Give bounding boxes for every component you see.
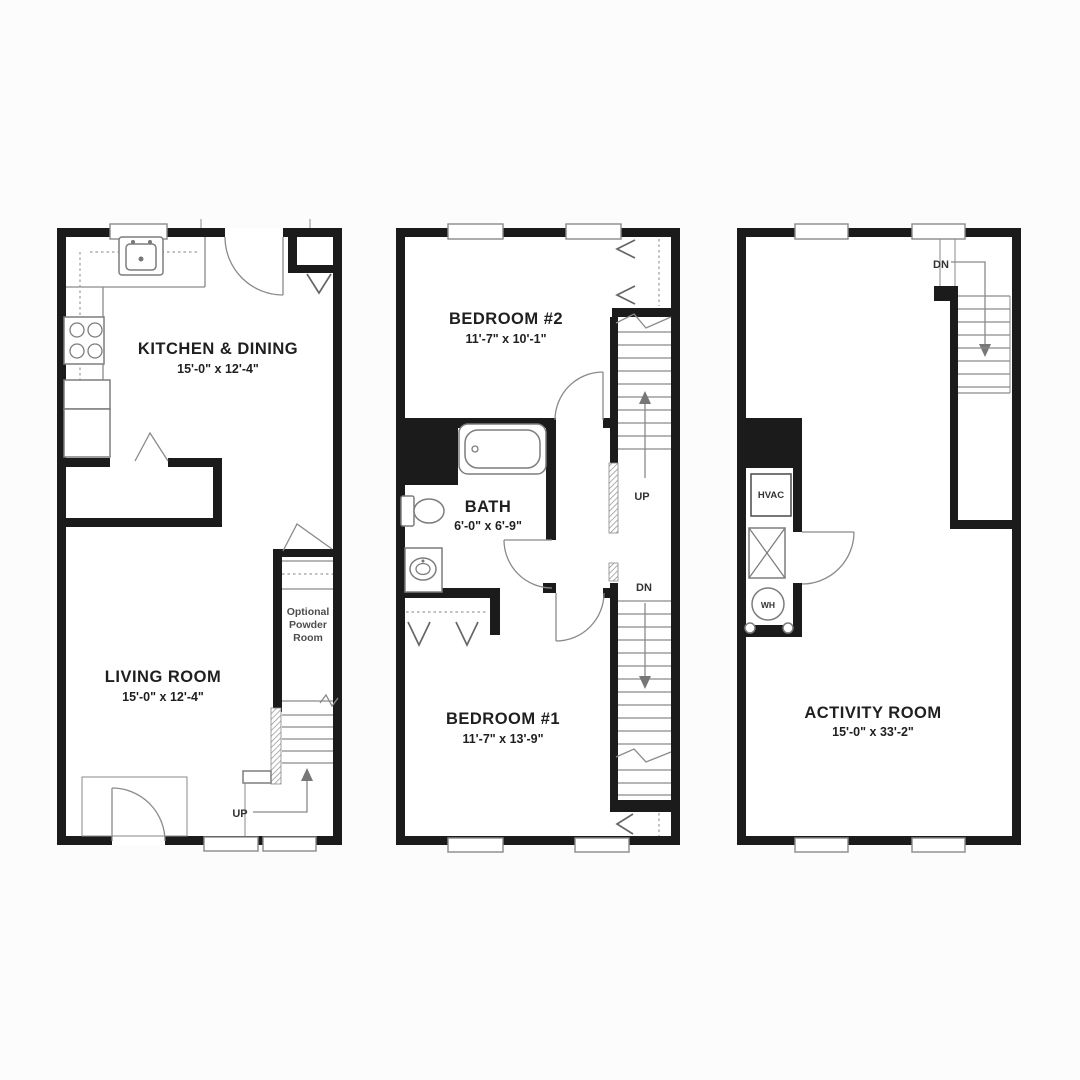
floorplan-page: UP KITCHEN & DINING 15'-0" x 12'-4" LIVI…: [0, 0, 1080, 1080]
kitchen-sink: [119, 237, 163, 275]
pipe-stub: [745, 623, 755, 633]
bath-vanity-sink: [405, 548, 442, 592]
bath-label: BATH: [465, 498, 512, 516]
plumbing-chase: [396, 420, 458, 485]
bedroom2-dims: 11'-7" x 10'-1": [465, 332, 546, 346]
kitchen-dining-label: KITCHEN & DINING: [138, 340, 298, 358]
window: [795, 838, 848, 852]
window: [795, 224, 848, 239]
rear-door-opening: [225, 228, 283, 237]
bedroom1-label: BEDROOM #1: [446, 710, 560, 728]
window: [263, 837, 316, 851]
powder-room-label-2: Powder: [289, 619, 327, 631]
window: [566, 224, 621, 239]
refrigerator: [64, 380, 110, 457]
furnace-box: [749, 528, 785, 578]
powder-room-label-1: Optional: [287, 606, 330, 618]
stair-landing: [243, 771, 271, 783]
window: [448, 838, 503, 852]
range-cooktop: [64, 317, 104, 364]
floorplan-canvas: UP KITCHEN & DINING 15'-0" x 12'-4" LIVI…: [0, 0, 1080, 1080]
water-heater: WH: [752, 588, 784, 620]
stair-rail: [609, 563, 618, 581]
activity-room-dims: 15'-0" x 33'-2": [832, 725, 914, 739]
floor1-up-label: UP: [232, 808, 247, 820]
kitchen-dining-dims: 15'-0" x 12'-4": [177, 362, 259, 376]
bedroom2-label: BEDROOM #2: [449, 310, 563, 328]
powder-room-label-3: Room: [293, 632, 323, 644]
living-room-label: LIVING ROOM: [105, 668, 221, 686]
bedroom1-dims: 11'-7" x 13'-9": [462, 732, 543, 746]
third-floor-plan: DN HVAC WH: [737, 224, 1021, 852]
floor3-dn-label: DN: [933, 259, 949, 271]
hvac-label: HVAC: [758, 490, 784, 501]
floor2-dn-label: DN: [636, 582, 652, 594]
window: [575, 838, 629, 852]
water-heater-label: WH: [761, 600, 775, 610]
living-room-dims: 15'-0" x 12'-4": [122, 690, 204, 704]
second-floor-plan: UP DN: [396, 224, 680, 852]
pipe-stub: [783, 623, 793, 633]
plumbing-chase: [737, 418, 802, 468]
toilet: [401, 496, 444, 526]
window: [912, 838, 965, 852]
floor2-up-label: UP: [634, 491, 649, 503]
entry-door-opening: [112, 836, 165, 845]
stair-rail: [271, 708, 281, 784]
window: [912, 224, 965, 239]
window: [204, 837, 258, 851]
first-floor-plan: UP KITCHEN & DINING 15'-0" x 12'-4" LIVI…: [57, 219, 342, 851]
bathtub: [459, 424, 546, 474]
activity-room-label: ACTIVITY ROOM: [804, 704, 941, 722]
stair-rail: [609, 463, 618, 533]
window: [448, 224, 503, 239]
bath-dims: 6'-0" x 6'-9": [454, 519, 522, 533]
